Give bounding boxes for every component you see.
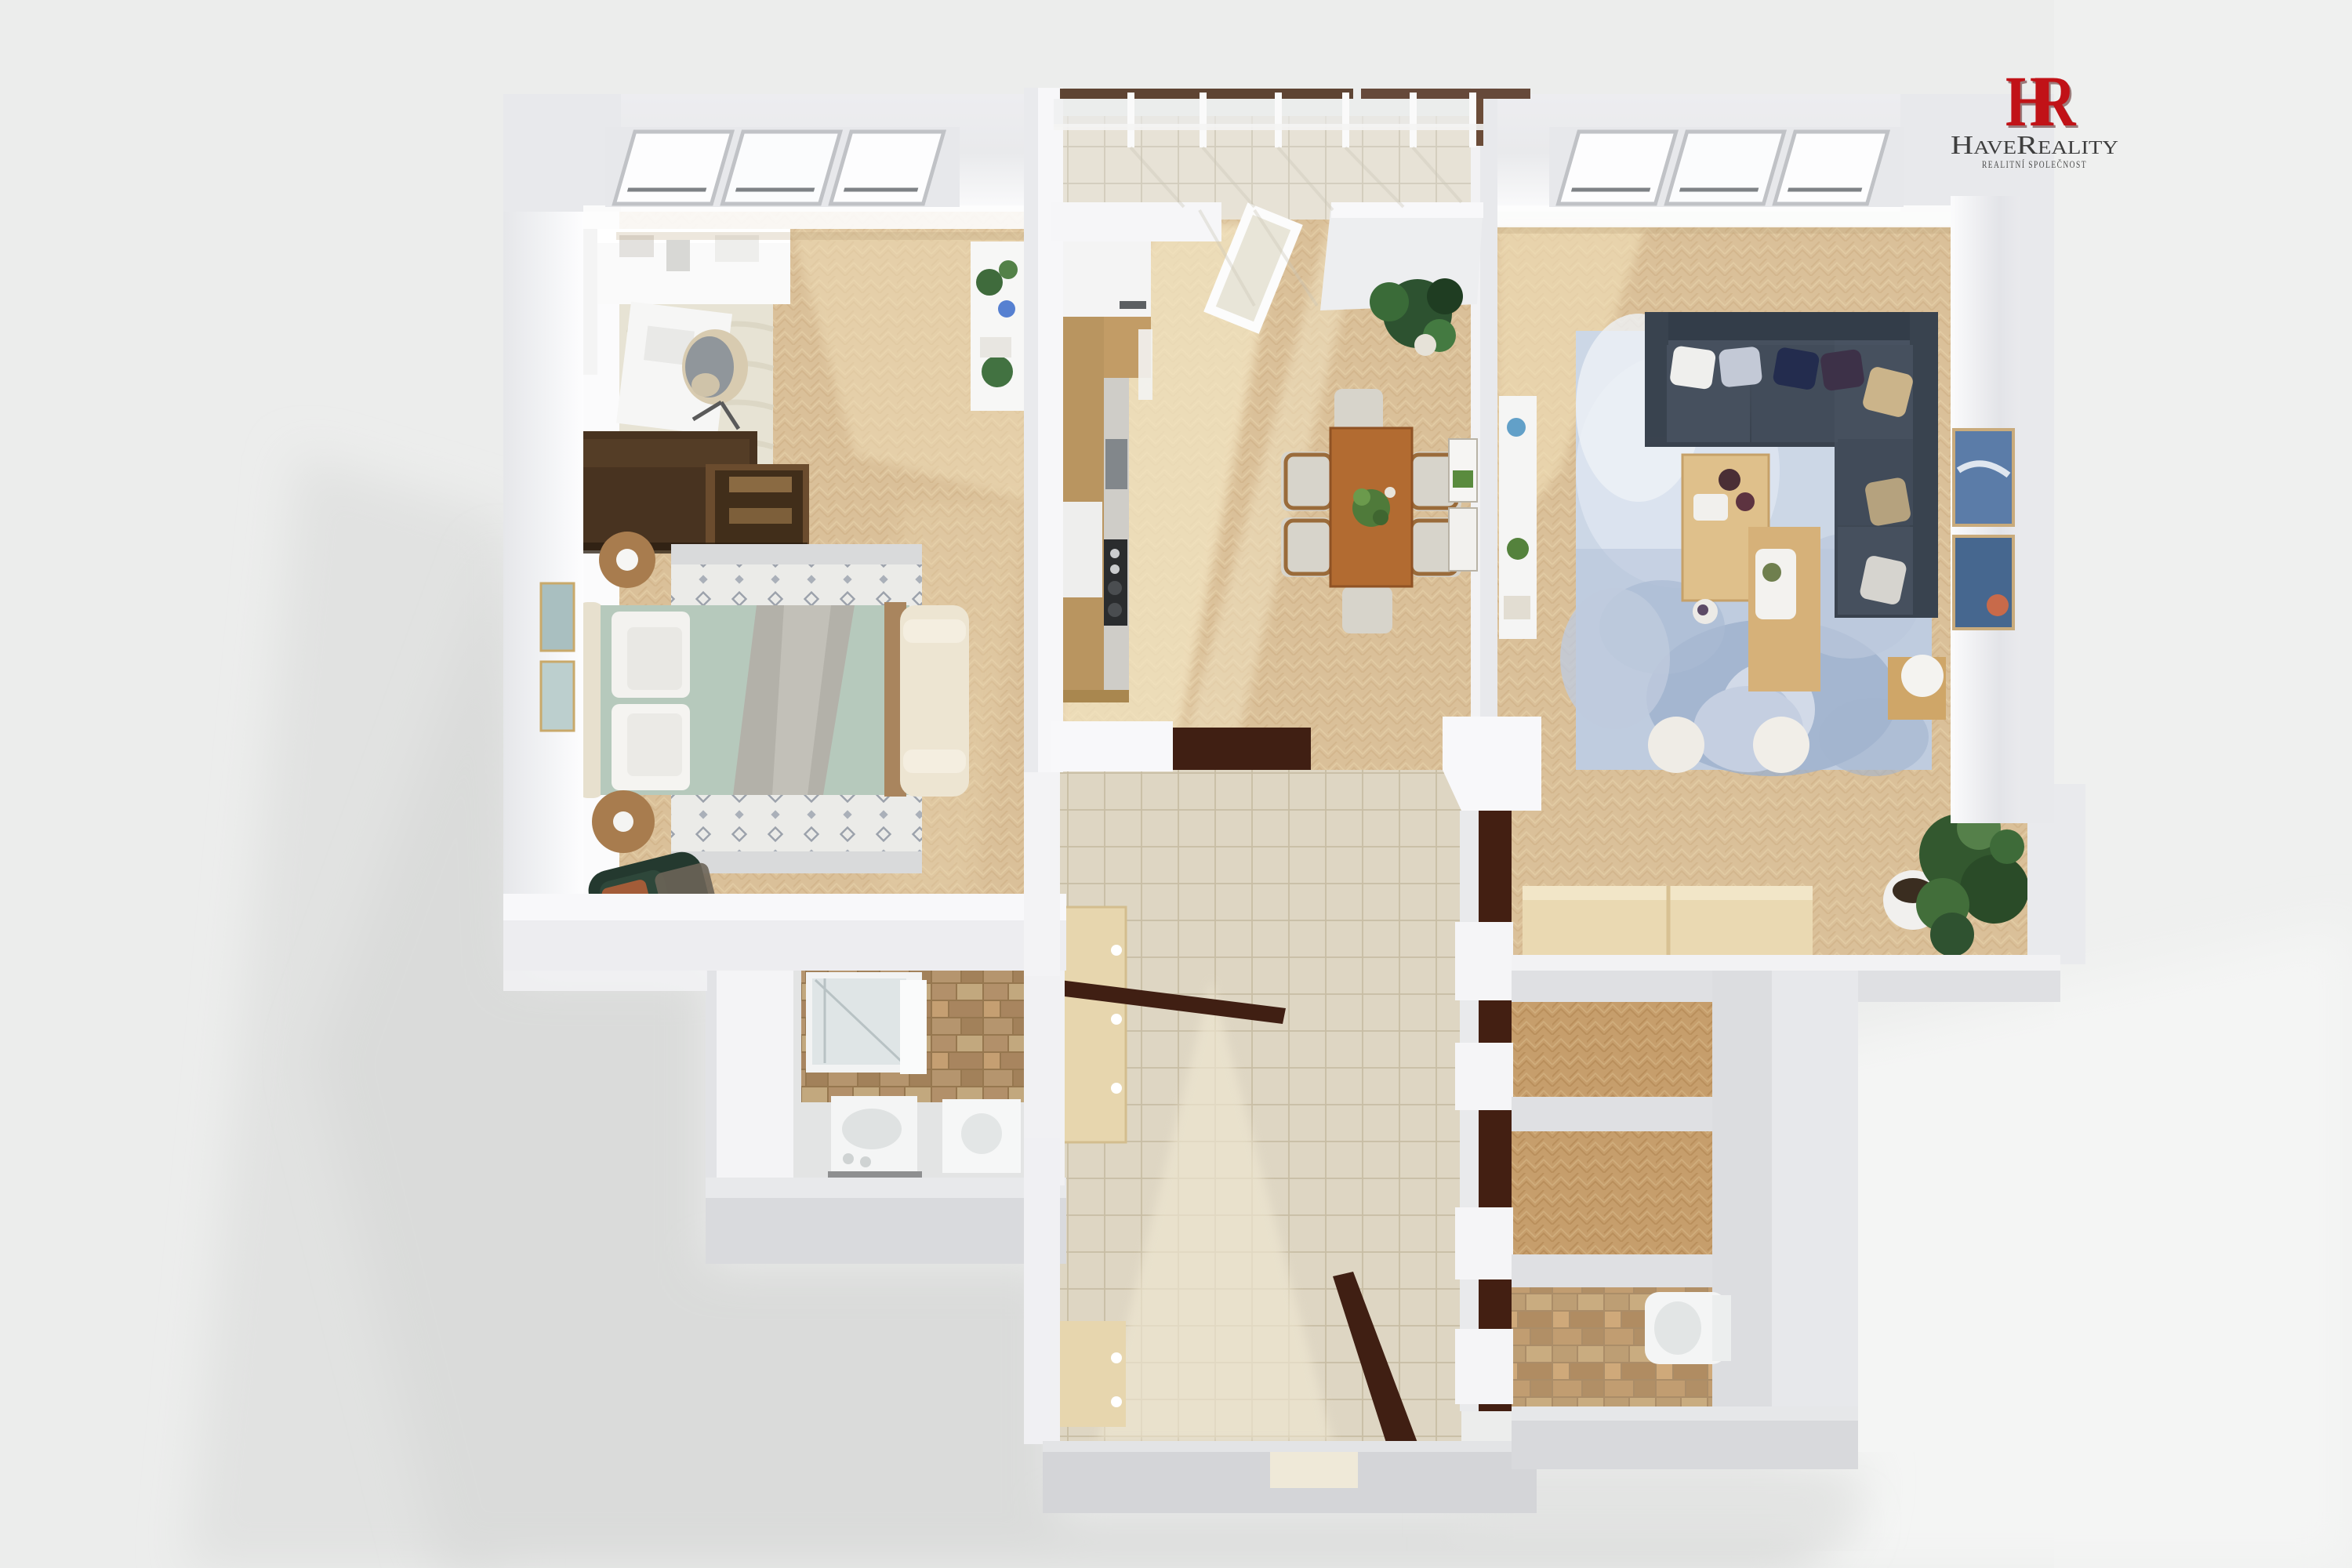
svg-text:HaveReality: HaveReality <box>1951 131 2118 160</box>
svg-text:REALITNÍ SPOLEČNOST: REALITNÍ SPOLEČNOST <box>1982 158 2087 170</box>
